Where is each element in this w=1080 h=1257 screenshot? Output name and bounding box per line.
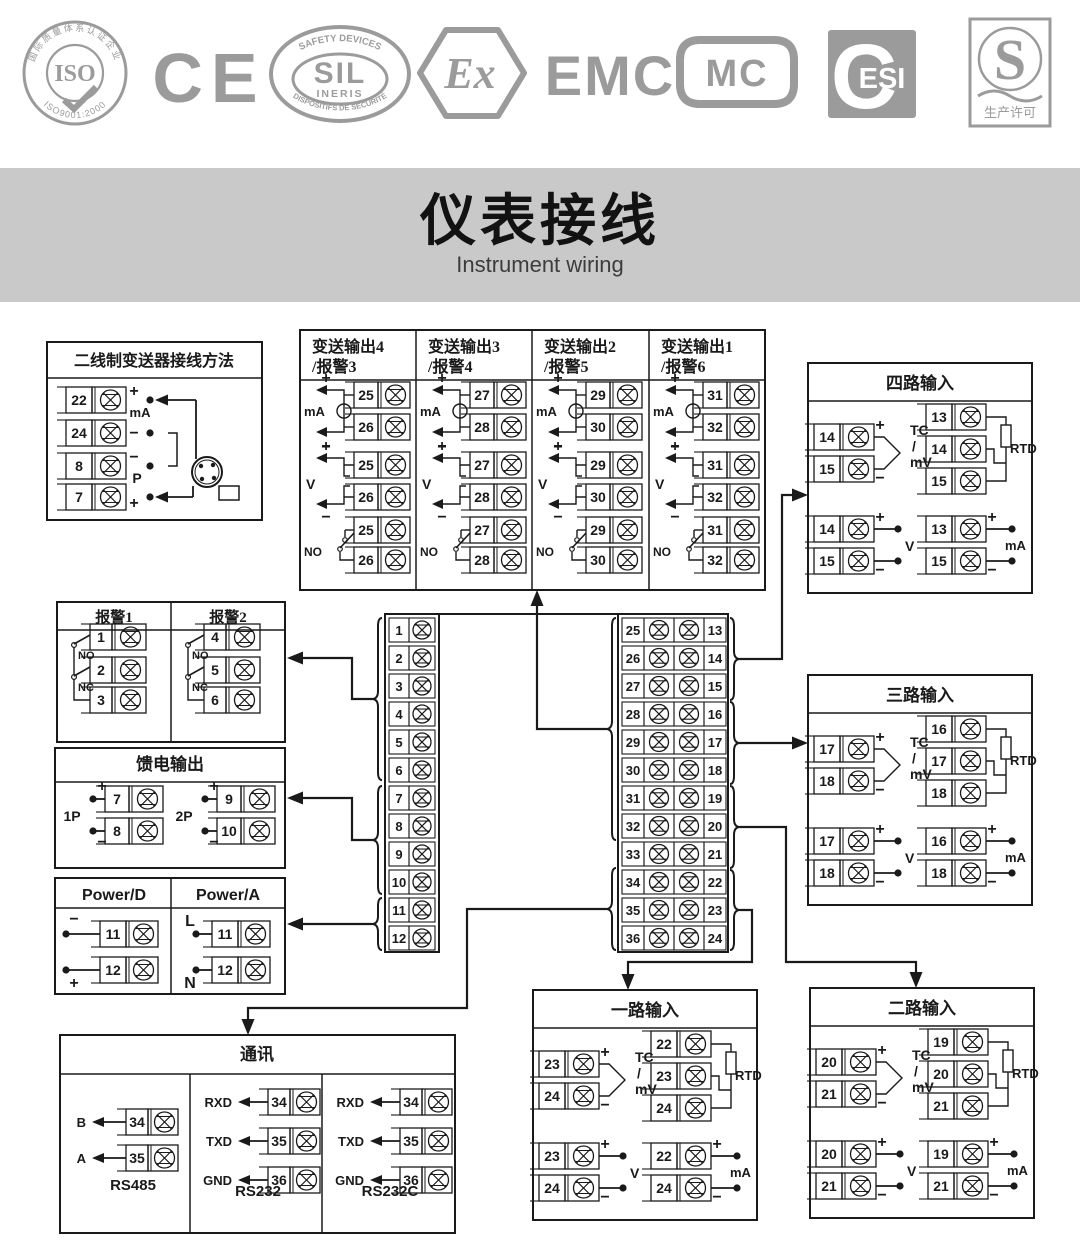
junction-dot — [1008, 869, 1015, 876]
terminal-number: 18 — [931, 865, 947, 881]
terminal-number: 31 — [707, 457, 723, 473]
terminal-number: 3 — [395, 679, 402, 694]
signal-label: NO — [78, 650, 95, 662]
terminal-number: 7 — [113, 791, 121, 807]
brace — [730, 870, 740, 950]
screw-terminal-icon — [386, 550, 406, 570]
terminal-number: 13 — [708, 623, 722, 638]
wire-path — [344, 486, 350, 497]
terminal-number: 17 — [708, 735, 722, 750]
screw-terminal-icon — [849, 739, 869, 759]
screw-terminal-icon — [413, 901, 431, 919]
signal-label: GND — [203, 1173, 232, 1188]
wire-path — [460, 486, 466, 497]
terminal-number: 16 — [931, 721, 947, 737]
box-rect — [422, 1167, 452, 1193]
arrow-icon — [155, 395, 168, 406]
screw-terminal-icon — [961, 471, 981, 491]
screw-terminal-icon — [502, 385, 522, 405]
screw-terminal-icon — [386, 520, 406, 540]
terminal-cell: 26 — [345, 414, 410, 440]
terminal-number: 8 — [395, 819, 402, 834]
transmitter-icon — [192, 457, 239, 500]
transmit-output-box: 变送输出4/报警32526+−mA2526+−V2526NO变送输出3/报警42… — [300, 330, 765, 590]
terminal-cell: 18 — [805, 768, 874, 794]
terminal-number: 13 — [931, 521, 947, 537]
arrow-icon — [370, 1097, 382, 1107]
terminal-number: 24 — [544, 1088, 560, 1104]
terminal-number: 23 — [544, 1148, 560, 1164]
wire-path — [576, 486, 582, 497]
screw-terminal-icon — [250, 821, 270, 841]
screw-terminal-icon — [650, 649, 669, 668]
wire — [303, 798, 372, 840]
terminal-cell: 31 — [694, 517, 759, 543]
terminal-cell: 14 — [805, 516, 874, 542]
polarity-label: − — [712, 1189, 721, 1206]
terminal-number: 9 — [395, 847, 402, 862]
terminal-number: 36 — [626, 931, 640, 946]
box-title: 报警2 — [209, 608, 247, 626]
page: 国际质量体系认证企业 ISO ISO9001:2000 CE SAFETY DE… — [0, 0, 1080, 1257]
junction-dot — [619, 1184, 626, 1191]
terminal-number: 27 — [474, 522, 490, 538]
terminal-cell: 25 — [345, 517, 410, 543]
screw-terminal-icon — [686, 1178, 706, 1198]
screw-terminal-icon — [386, 385, 406, 405]
terminal-number: 25 — [626, 623, 640, 638]
screw-terminal-icon — [413, 761, 431, 779]
terminal-number: 13 — [931, 409, 947, 425]
signal-label: NO — [653, 545, 671, 559]
feed-group: 1P7+8− — [63, 778, 163, 851]
terminal-number: 30 — [590, 489, 606, 505]
terminal-cell: 24 — [642, 1095, 711, 1121]
screw-terminal-icon — [680, 929, 699, 948]
screw-terminal-icon — [963, 1096, 983, 1116]
box-rect — [290, 1128, 320, 1154]
terminal-cell: 34 — [117, 1109, 178, 1135]
polarity-label: − — [875, 782, 884, 799]
terminal-number: 31 — [707, 522, 723, 538]
terminal-number: 28 — [626, 707, 640, 722]
screw-terminal-icon — [413, 649, 431, 667]
signal-label: NO — [536, 545, 554, 559]
comm-section: RXD34TXD35GND36RS232 — [203, 1089, 320, 1200]
wire-path — [711, 1076, 731, 1090]
screw-terminal-icon — [849, 771, 869, 791]
terminal-number: 29 — [626, 735, 640, 750]
wire-path — [988, 1074, 1008, 1088]
wire-path — [559, 497, 586, 504]
terminal-number: 12 — [217, 962, 233, 978]
arrow-icon — [287, 792, 303, 805]
wire-path — [874, 437, 900, 469]
terminal-number: 28 — [474, 419, 490, 435]
terminal-number: 22 — [656, 1148, 672, 1164]
signal-label: P — [132, 470, 141, 486]
junction-dot — [1008, 557, 1015, 564]
signal-label: / — [914, 1063, 918, 1079]
wire-path — [988, 1042, 1008, 1050]
terminal-number: 16 — [931, 833, 947, 849]
terminal-number: 12 — [105, 962, 121, 978]
screw-terminal-icon — [851, 1176, 871, 1196]
screw-terminal-icon — [650, 677, 669, 696]
terminal-number: 2 — [97, 662, 105, 678]
screw-terminal-icon — [851, 1084, 871, 1104]
terminal-number: 20 — [933, 1066, 949, 1082]
signal-label: RTD — [1010, 753, 1037, 768]
alarm-column: 123NONC — [72, 624, 146, 713]
arrow-icon — [548, 499, 559, 509]
polarity-label: − — [129, 425, 138, 442]
signal-label: V — [306, 476, 316, 492]
terminal-cell: 30 — [577, 484, 642, 510]
screw-terminal-icon — [386, 417, 406, 437]
brace — [730, 618, 740, 700]
screw-terminal-icon — [849, 459, 869, 479]
signal-label: 2P — [175, 808, 192, 824]
box-title: 四路输入 — [886, 373, 954, 393]
wire-path — [689, 552, 703, 560]
signal-label: B — [77, 1115, 86, 1130]
terminal-number: 15 — [931, 553, 947, 569]
arrow-icon — [432, 427, 443, 437]
terminal-cell: 35 — [391, 1128, 452, 1154]
terminal-number: 18 — [819, 773, 835, 789]
arrow-icon — [238, 1136, 250, 1146]
box-rect — [422, 1128, 452, 1154]
screw-terminal-icon — [429, 1131, 449, 1151]
signal-label: V — [422, 476, 432, 492]
terminal-number: 35 — [271, 1133, 287, 1149]
screw-terminal-icon — [686, 1098, 706, 1118]
signal-label: A — [77, 1151, 87, 1166]
polarity-label: − — [987, 562, 996, 579]
terminal-cell: 29 — [577, 452, 642, 478]
screw-terminal-icon — [650, 817, 669, 836]
terminal-number: 30 — [626, 763, 640, 778]
screw-terminal-icon — [297, 1170, 317, 1190]
polarity-label: − — [875, 562, 884, 579]
terminal-number: 34 — [626, 875, 641, 890]
screw-terminal-icon — [961, 719, 981, 739]
box-title: /报警6 — [660, 357, 705, 376]
screw-terminal-icon — [246, 924, 266, 944]
terminal-cell: 27 — [461, 382, 526, 408]
brace — [372, 618, 382, 780]
wire-path — [443, 458, 470, 465]
terminal-cell: 30 — [577, 414, 642, 440]
box-rect — [290, 1167, 320, 1193]
screw-terminal-icon — [735, 487, 755, 507]
screw-terminal-icon — [961, 519, 981, 539]
terminal-number: 32 — [707, 552, 723, 568]
arrow-icon — [370, 1136, 382, 1146]
junction-dot — [894, 557, 901, 564]
terminal-cell: 23 — [530, 1051, 599, 1077]
terminal-cell: 24 — [57, 420, 126, 446]
screw-terminal-icon — [735, 455, 755, 475]
terminal-number: 27 — [474, 387, 490, 403]
terminal-number: 18 — [708, 763, 722, 778]
screw-terminal-icon — [963, 1144, 983, 1164]
box-title: 通讯 — [240, 1045, 274, 1064]
box-title: 二线制变送器接线方法 — [74, 351, 234, 370]
screw-terminal-icon — [735, 520, 755, 540]
terminal-number: 16 — [708, 707, 722, 722]
screw-terminal-icon — [101, 487, 121, 507]
terminal-cell: 31 — [694, 382, 759, 408]
comm-standard-label: RS232 — [235, 1183, 281, 1200]
screw-terminal-icon — [680, 817, 699, 836]
polarity-label: + — [989, 1134, 998, 1151]
screw-terminal-icon — [101, 423, 121, 443]
terminal-number: 30 — [590, 552, 606, 568]
wire-path — [168, 433, 177, 466]
terminal-number: 19 — [933, 1146, 949, 1162]
box-rect — [148, 1145, 178, 1171]
polarity-label: − — [129, 449, 138, 466]
terminal-number: 32 — [707, 419, 723, 435]
terminal-number: 24 — [71, 425, 87, 441]
junction-dot — [212, 476, 216, 480]
brace — [730, 786, 740, 868]
box-title: 三路输入 — [886, 685, 954, 705]
terminal-cell: 24 — [642, 1175, 711, 1201]
terminal-cell: 1 — [81, 624, 146, 650]
junction-dot — [146, 396, 153, 403]
signal-label: / — [912, 438, 916, 454]
terminal-cell: 34 — [391, 1089, 452, 1115]
terminal-number: 15 — [708, 679, 722, 694]
terminal-number: 1 — [97, 629, 105, 645]
terminal-number: 27 — [474, 457, 490, 473]
signal-label: mA — [653, 404, 675, 419]
arrow-icon — [316, 427, 327, 437]
terminal-cell: 31 — [694, 452, 759, 478]
signal-label: mA — [420, 404, 442, 419]
polarity-label: + — [600, 1136, 609, 1153]
screw-terminal-icon — [429, 1170, 449, 1190]
box-title: /报警5 — [543, 357, 588, 376]
four-channel-input-box: 四路输入1415+−TC/mV131415RTD1415+−V1315+−mA — [805, 363, 1037, 593]
terminal-number: 4 — [211, 629, 219, 645]
wire-path — [876, 1062, 902, 1094]
junction-dot — [619, 1152, 626, 1159]
polarity-label: + — [600, 1044, 609, 1061]
terminal-number: 11 — [218, 926, 233, 942]
terminal-cell: 12 — [203, 957, 270, 983]
screw-terminal-icon — [650, 845, 669, 864]
feed-group: 2P9+10− — [175, 778, 275, 851]
junction-dot — [733, 1152, 740, 1159]
screw-terminal-icon — [650, 873, 669, 892]
transmit-column: 变送输出2/报警52930+−mA2930+−V2930NO — [536, 337, 642, 573]
terminal-number: 4 — [395, 707, 403, 722]
terminal-cell: 32 — [694, 484, 759, 510]
junction-dot — [1008, 837, 1015, 844]
signal-label: V — [905, 850, 915, 866]
wire-path — [340, 552, 354, 560]
comm-section: RXD34TXD35GND36RS232C — [335, 1089, 452, 1200]
terminal-number: 14 — [819, 521, 835, 537]
screw-terminal-icon — [618, 520, 638, 540]
junction-dot — [199, 464, 203, 468]
terminal-number: 12 — [392, 931, 406, 946]
wiring-diagram: 二线制变送器接线方法222487+mA−−P+变送输出4/报警32526+−mA… — [0, 0, 1080, 1257]
screw-terminal-icon — [134, 924, 154, 944]
terminal-cell: 21 — [807, 1081, 876, 1107]
screw-terminal-icon — [961, 439, 981, 459]
polarity-label: + — [712, 1136, 721, 1153]
comm-standard-label: RS232C — [362, 1183, 419, 1200]
screw-terminal-icon — [121, 660, 141, 680]
terminal-number: 15 — [931, 473, 947, 489]
power-box: Power/DPower/A−1112+L1112N — [55, 878, 285, 994]
terminal-number: 1 — [395, 623, 402, 638]
signal-label: RTD — [1010, 441, 1037, 456]
polarity-label: + — [877, 1134, 886, 1151]
terminal-cell: 11 — [203, 921, 270, 947]
box-rect — [60, 1035, 455, 1233]
terminal-cell: 14 — [805, 424, 874, 450]
terminal-number: 22 — [71, 392, 87, 408]
screw-terminal-icon — [235, 660, 255, 680]
screw-terminal-icon — [101, 390, 121, 410]
box-title: /报警4 — [427, 357, 472, 376]
screw-terminal-icon — [849, 519, 869, 539]
polarity-label: + — [69, 975, 78, 992]
terminal-cell: 15 — [917, 548, 986, 574]
terminal-number: 21 — [933, 1178, 949, 1194]
wire-path — [74, 696, 90, 700]
polarity-label: + — [129, 383, 138, 400]
signal-label: NO — [420, 545, 438, 559]
signal-label: RTD — [1012, 1066, 1039, 1081]
wire-line — [188, 667, 204, 676]
screw-terminal-icon — [138, 789, 158, 809]
terminal-number: 18 — [819, 865, 835, 881]
screw-terminal-icon — [574, 1146, 594, 1166]
terminal-cell: 25 — [345, 452, 410, 478]
junction-dot — [200, 477, 204, 481]
wire-path — [327, 497, 354, 504]
box-rect — [148, 1109, 178, 1135]
screw-terminal-icon — [235, 690, 255, 710]
terminal-number: 2 — [395, 651, 402, 666]
junction-dot — [894, 869, 901, 876]
screw-terminal-icon — [413, 929, 431, 947]
terminal-number: 8 — [113, 823, 121, 839]
terminal-cell: 28 — [461, 547, 526, 573]
wire-line — [74, 667, 90, 676]
wire-path — [327, 390, 344, 432]
terminal-cell: 18 — [917, 860, 986, 886]
junction-dot — [1008, 525, 1015, 532]
wire-path — [599, 1064, 625, 1096]
terminal-cell: 22 — [57, 387, 126, 413]
junction-dot — [211, 463, 215, 467]
screw-terminal-icon — [618, 455, 638, 475]
screw-terminal-icon — [735, 385, 755, 405]
signal-label: TXD — [206, 1134, 232, 1149]
right-terminal-strip: 2513261427152816291730183119322033213422… — [618, 614, 728, 952]
terminal-cell: 27 — [461, 517, 526, 543]
terminal-number: 29 — [590, 387, 606, 403]
screw-terminal-icon — [413, 733, 431, 751]
arrow-icon — [665, 499, 676, 509]
screw-terminal-icon — [851, 1052, 871, 1072]
signal-label: V — [538, 476, 548, 492]
terminal-number: 19 — [708, 791, 722, 806]
box-title: 变送输出1 — [661, 337, 733, 356]
wire-line — [340, 533, 354, 548]
polarity-label: − — [670, 509, 679, 526]
signal-label: V — [905, 538, 915, 554]
screw-terminal-icon — [618, 417, 638, 437]
wire-path — [986, 759, 1006, 793]
terminal-cell: 26 — [345, 484, 410, 510]
terminal-cell: 18 — [917, 780, 986, 806]
terminal-cell: 17 — [805, 736, 874, 762]
box-title: 二路输入 — [888, 998, 956, 1018]
signal-label: RTD — [735, 1068, 762, 1083]
terminal-number: 5 — [211, 662, 219, 678]
screw-terminal-icon — [502, 417, 522, 437]
terminal-number: 10 — [221, 823, 237, 839]
screw-terminal-icon — [297, 1092, 317, 1112]
terminal-number: 21 — [933, 1098, 949, 1114]
terminal-number: 31 — [626, 791, 640, 806]
terminal-cell: 28 — [461, 484, 526, 510]
terminal-number: 15 — [819, 553, 835, 569]
arrow-icon — [910, 972, 923, 988]
screw-terminal-icon — [961, 407, 981, 427]
arrow-icon — [665, 427, 676, 437]
signal-label: 1P — [63, 808, 80, 824]
arrow-icon — [548, 427, 559, 437]
wire-path — [676, 497, 703, 504]
terminal-cell: 18 — [805, 860, 874, 886]
terminal-cell: 29 — [577, 517, 642, 543]
terminal-number: 17 — [931, 753, 947, 769]
feed-output-box: 馈电输出1P7+8−2P9+10− — [55, 748, 285, 868]
terminal-number: 35 — [129, 1150, 145, 1166]
wire-path — [443, 497, 470, 504]
wire-path — [874, 749, 900, 781]
terminal-cell: 11 — [91, 921, 158, 947]
terminal-number: 10 — [392, 875, 406, 890]
screw-terminal-icon — [680, 789, 699, 808]
signal-label: / — [637, 1065, 641, 1081]
screw-terminal-icon — [735, 417, 755, 437]
arrow-icon — [155, 492, 168, 503]
wire-line — [74, 635, 90, 644]
box-rect — [808, 675, 1032, 905]
signal-label: mA — [304, 404, 326, 419]
terminal-number: 35 — [626, 903, 640, 918]
arrow-icon — [287, 652, 303, 665]
screw-terminal-icon — [618, 550, 638, 570]
terminal-number: 7 — [75, 489, 83, 505]
screw-terminal-icon — [650, 789, 669, 808]
wire-path — [460, 465, 466, 476]
screw-terminal-icon — [680, 733, 699, 752]
polarity-label: − — [321, 509, 330, 526]
screw-terminal-icon — [413, 621, 431, 639]
